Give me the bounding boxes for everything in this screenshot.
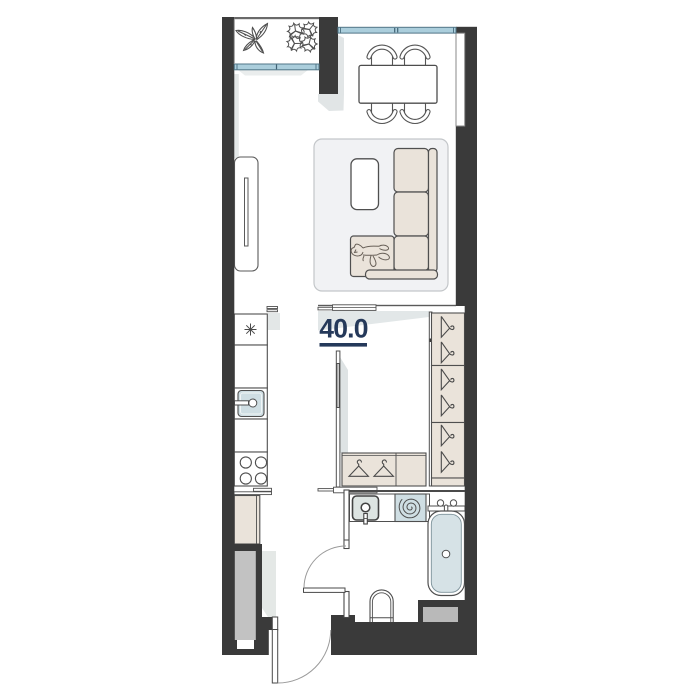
svg-text:40.0: 40.0 bbox=[319, 314, 367, 344]
